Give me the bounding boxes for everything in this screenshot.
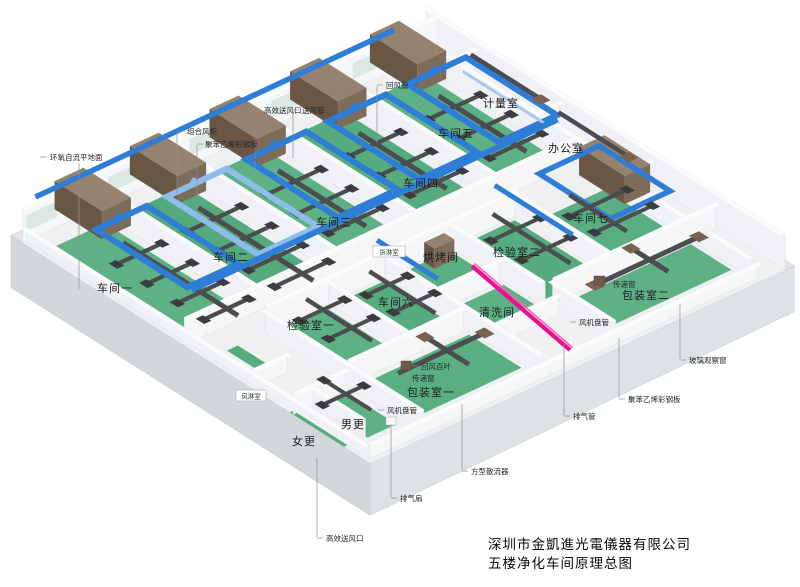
room-label: 烘烤间 — [423, 250, 459, 264]
annotation-label: 传递窗 — [412, 373, 435, 383]
annotation-label: 玻璃观察窗 — [689, 355, 727, 365]
room-label: 办公室 — [548, 141, 584, 155]
supply-duct-stub — [271, 142, 276, 145]
supply-duct-stub — [352, 105, 357, 108]
company-title: 深圳市金凱進光電儀器有限公司 — [488, 536, 691, 552]
isometric-scene: 环氧自流平地面组合风柜聚苯乙烯彩钢板高效送风口送风管回风管回风百叶传递窗传递窗风… — [0, 0, 800, 587]
annotation-label: 组合风柜 — [187, 126, 217, 136]
annotation-label: 排气管 — [573, 411, 596, 421]
room-label: 车间二 — [213, 250, 249, 264]
room-label: 检验室二 — [493, 245, 541, 259]
annotation-label: 送风管 — [302, 105, 325, 115]
annotation-label: 回风百叶 — [421, 362, 451, 371]
supply-duct-stub — [192, 179, 197, 182]
annotation-label: 高效送风口 — [264, 105, 302, 115]
supply-duct-stub — [116, 214, 121, 217]
room-label: 女更 — [292, 434, 316, 448]
room-label: 车间六 — [378, 295, 414, 309]
return-louver-box — [401, 361, 411, 370]
annotation-label: 回风管 — [386, 80, 409, 90]
room-label: 车间七 — [573, 211, 609, 225]
room-label: 包装室二 — [622, 288, 670, 302]
annotation-label: 聚苯乙烯彩钢板 — [628, 394, 681, 404]
room-label: 车间五 — [438, 126, 474, 140]
pass-window-box — [594, 276, 605, 285]
exhaust-fan-box — [386, 417, 396, 425]
room-label: 检验室一 — [287, 318, 335, 332]
annotation-label: 环氧自流平地面 — [50, 152, 103, 162]
room-label: 车间一 — [97, 281, 133, 295]
air-shower-label: 风淋室 — [241, 392, 261, 401]
annotation-label: 方型散流器 — [471, 466, 509, 476]
annotation-label: 排气扇 — [400, 493, 423, 503]
annotation-label: 高效送风口 — [326, 533, 364, 543]
annotation-label: 传递窗 — [613, 279, 636, 289]
room-label: 计量室 — [483, 96, 519, 110]
room-label: 车间三 — [316, 215, 352, 229]
annotation-label: 聚苯乙烯彩钢板 — [205, 139, 258, 149]
drawing-title: 五楼净化车间原理总图 — [488, 555, 633, 571]
supply-duct-stub — [432, 68, 437, 71]
room-label: 男更 — [341, 419, 365, 431]
room-label: 车间四 — [403, 176, 439, 190]
room-label: 清洗间 — [479, 306, 515, 319]
annotation-label: 风机盘管 — [387, 405, 417, 415]
cleanroom-isometric-diagram: 环氧自流平地面组合风柜聚苯乙烯彩钢板高效送风口送风管回风管回风百叶传递窗传递窗风… — [0, 0, 800, 587]
room-label: 包装室一 — [407, 385, 455, 399]
cargo-shower-label: 货淋室 — [379, 248, 399, 257]
annotation-label: 风机盘管 — [579, 317, 609, 327]
